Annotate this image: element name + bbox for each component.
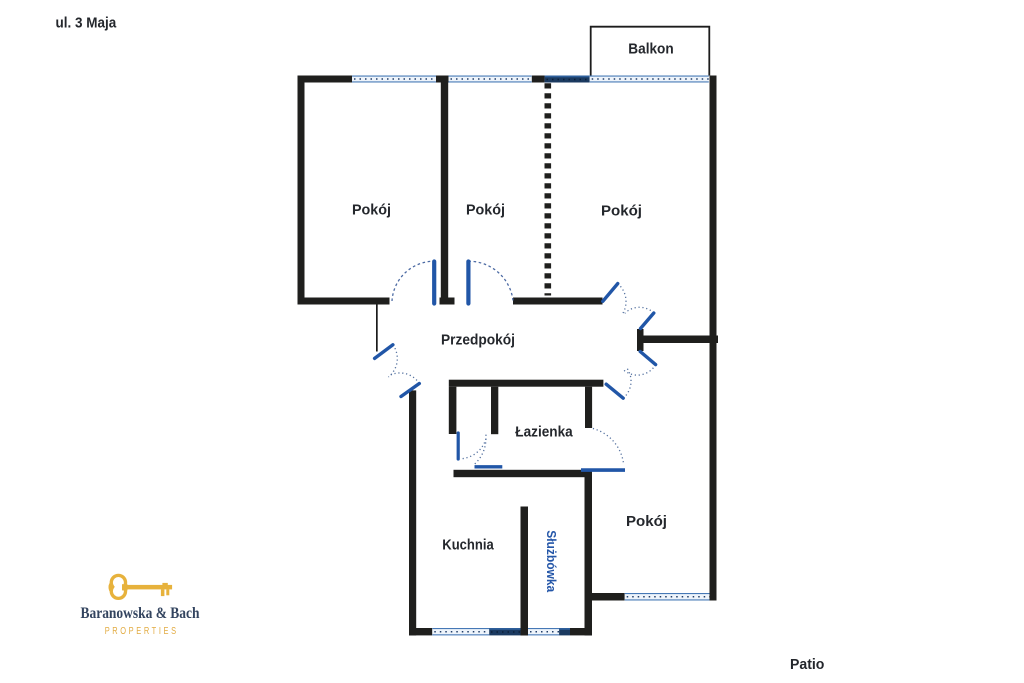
- svg-text:Pokój: Pokój: [626, 514, 667, 530]
- svg-text:Kuchnia: Kuchnia: [442, 538, 494, 554]
- svg-text:ul. 3 Maja: ul. 3 Maja: [56, 16, 118, 32]
- svg-text:Przedpokój: Przedpokój: [441, 333, 515, 349]
- svg-text:Patio: Patio: [790, 657, 825, 673]
- svg-text:Służbówka: Służbówka: [544, 530, 558, 593]
- svg-text:Pokój: Pokój: [352, 203, 391, 219]
- svg-text:Łazienka: Łazienka: [515, 425, 573, 441]
- svg-text:PROPERTIES: PROPERTIES: [105, 626, 179, 637]
- svg-text:Balkon: Balkon: [628, 42, 673, 58]
- svg-text:Pokój: Pokój: [466, 203, 505, 219]
- svg-text:Baranowska & Bach: Baranowska & Bach: [81, 605, 200, 622]
- svg-text:Pokój: Pokój: [601, 204, 642, 220]
